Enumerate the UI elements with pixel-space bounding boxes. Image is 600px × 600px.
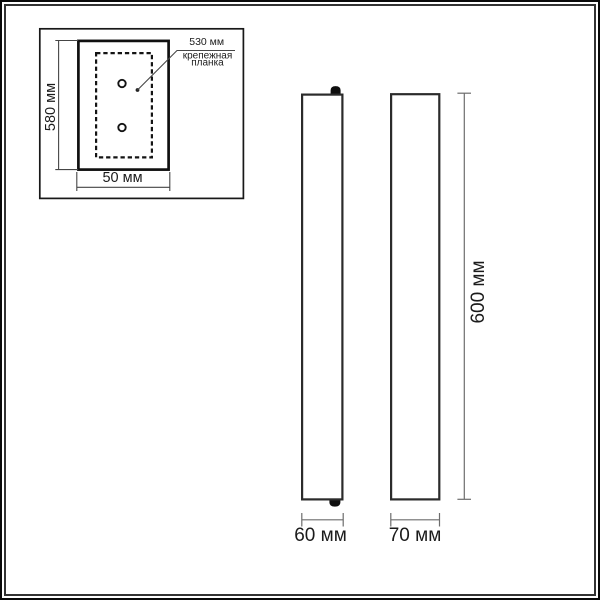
height-label: 600 мм	[468, 260, 490, 323]
side-view-outline	[302, 95, 342, 500]
plate-name-label: крепежная планка	[183, 52, 233, 67]
screw-hole-bottom	[118, 124, 125, 131]
back-width-label: 50 мм	[102, 170, 142, 186]
front-view-outline	[391, 94, 439, 499]
rear-view-outline	[78, 41, 168, 170]
drawing-linework	[0, 0, 600, 600]
plate-length-label: 530 мм	[189, 36, 224, 48]
back-height-label: 580 мм	[43, 82, 59, 130]
screw-hole-top	[118, 80, 125, 87]
side-width-label: 60 мм	[294, 525, 347, 547]
technical-drawing-page: 580 мм 50 мм 530 мм крепежная планка 60 …	[0, 0, 600, 600]
front-width-label: 70 мм	[389, 525, 442, 547]
